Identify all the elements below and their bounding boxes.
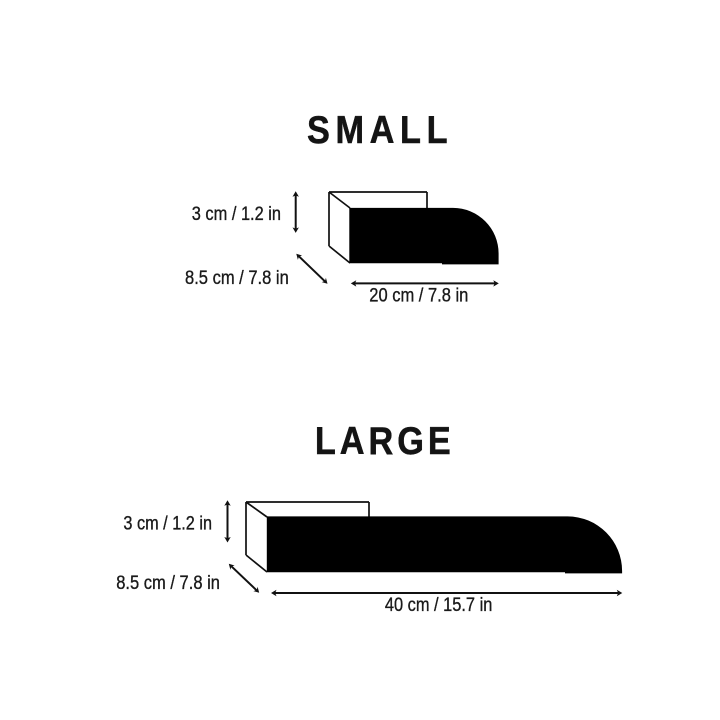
svg-text:8.5 cm / 7.8 in: 8.5 cm / 7.8 in bbox=[116, 572, 220, 594]
svg-text:3 cm / 1.2 in: 3 cm / 1.2 in bbox=[192, 203, 281, 225]
svg-text:SMALL: SMALL bbox=[307, 108, 448, 152]
svg-text:LARGE: LARGE bbox=[315, 419, 451, 463]
svg-text:40 cm / 15.7 in: 40 cm / 15.7 in bbox=[385, 594, 493, 616]
svg-text:20 cm / 7.8 in: 20 cm / 7.8 in bbox=[369, 284, 468, 306]
svg-text:3 cm / 1.2 in: 3 cm / 1.2 in bbox=[123, 512, 212, 534]
svg-text:8.5 cm / 7.8 in: 8.5 cm / 7.8 in bbox=[185, 267, 289, 289]
